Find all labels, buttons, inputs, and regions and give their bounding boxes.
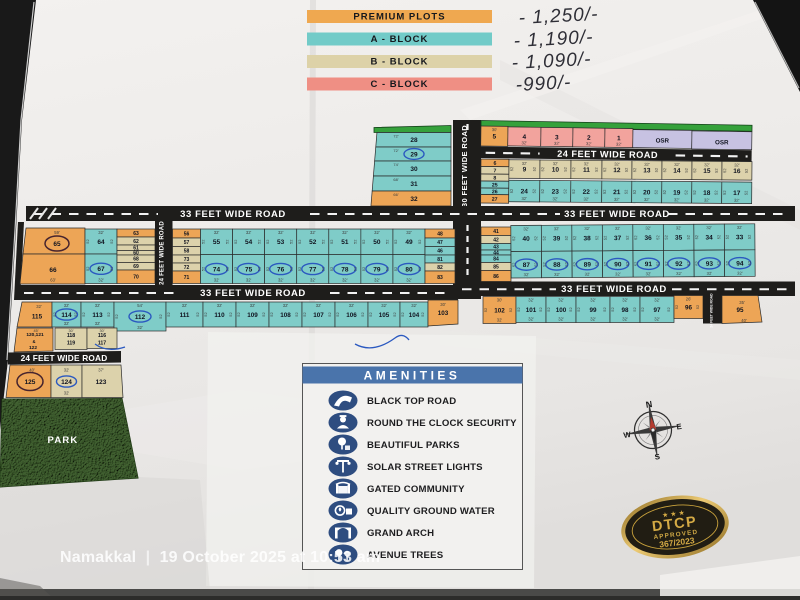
svg-text:52: 52: [546, 307, 551, 312]
svg-text:SOLAR STREET LIGHTS: SOLAR STREET LIGHTS: [367, 462, 483, 473]
svg-text:85: 85: [493, 264, 499, 270]
svg-text:24: 24: [521, 188, 529, 195]
svg-text:32': 32': [622, 298, 628, 303]
svg-text:52: 52: [368, 312, 373, 317]
svg-text:12: 12: [613, 167, 621, 174]
svg-text:30': 30': [69, 329, 74, 333]
svg-text:32': 32': [98, 230, 104, 235]
svg-text:52: 52: [106, 312, 111, 317]
svg-text:45': 45': [34, 329, 39, 333]
svg-text:37: 37: [614, 235, 622, 242]
svg-text:110: 110: [214, 312, 225, 319]
svg-text:C - BLOCK: C - BLOCK: [370, 79, 428, 90]
svg-text:&: &: [32, 339, 35, 344]
svg-text:52: 52: [261, 312, 266, 317]
svg-text:30': 30': [492, 127, 498, 132]
svg-text:26': 26': [686, 297, 692, 302]
svg-text:29: 29: [410, 151, 418, 158]
svg-text:32': 32': [64, 303, 70, 308]
svg-text:32': 32': [524, 272, 530, 277]
svg-text:63': 63': [50, 278, 56, 283]
svg-text:32': 32': [674, 197, 680, 202]
svg-text:100: 100: [556, 307, 567, 314]
svg-text:30 FEET WIDE ROAD: 30 FEET WIDE ROAD: [460, 125, 469, 207]
svg-text:66: 66: [49, 267, 57, 274]
svg-text:24 FEET WIDE ROAD: 24 FEET WIDE ROAD: [160, 221, 166, 285]
svg-text:52: 52: [195, 312, 200, 317]
svg-text:32': 32': [95, 321, 101, 326]
svg-text:125: 125: [25, 379, 36, 386]
svg-text:32': 32': [137, 325, 143, 330]
svg-text:52: 52: [400, 312, 405, 317]
svg-text:52: 52: [695, 304, 700, 309]
svg-text:21: 21: [613, 189, 621, 196]
svg-text:GRAND ARCH: GRAND ARCH: [367, 528, 434, 539]
svg-text:52: 52: [417, 239, 422, 244]
svg-text:52: 52: [158, 314, 163, 319]
svg-text:52: 52: [508, 307, 513, 312]
svg-text:34: 34: [706, 234, 714, 241]
svg-text:24 FEET WIDE ROAD: 24 FEET WIDE ROAD: [21, 353, 108, 363]
svg-text:89: 89: [584, 262, 592, 269]
svg-text:30': 30': [497, 298, 503, 303]
svg-text:28: 28: [410, 137, 418, 144]
svg-text:9: 9: [523, 166, 527, 173]
svg-text:40: 40: [523, 236, 531, 243]
svg-text:32': 32': [310, 230, 316, 235]
svg-text:72': 72': [393, 148, 398, 153]
svg-text:52: 52: [483, 307, 488, 312]
svg-text:52: 52: [289, 266, 294, 271]
svg-text:32': 32': [644, 197, 650, 202]
svg-text:BEAUTIFUL PARKS: BEAUTIFUL PARKS: [367, 440, 460, 451]
svg-text:52: 52: [335, 312, 340, 317]
svg-text:32': 32': [64, 321, 70, 326]
svg-text:18: 18: [703, 190, 711, 197]
svg-text:106: 106: [346, 312, 357, 319]
svg-text:36: 36: [645, 235, 653, 242]
svg-text:81: 81: [437, 257, 443, 263]
svg-text:52: 52: [203, 312, 208, 317]
svg-text:101: 101: [526, 307, 537, 314]
svg-text:80: 80: [405, 266, 413, 273]
svg-text:52: 52: [329, 266, 334, 271]
svg-text:32': 32': [704, 197, 710, 202]
svg-text:52: 52: [385, 239, 390, 244]
svg-text:52: 52: [302, 312, 307, 317]
svg-text:52: 52: [109, 239, 114, 244]
svg-text:52: 52: [538, 307, 543, 312]
svg-text:32': 32': [246, 230, 252, 235]
svg-text:GATED COMMUNITY: GATED COMMUNITY: [367, 484, 465, 495]
svg-text:32': 32': [737, 271, 743, 276]
svg-text:52: 52: [166, 312, 171, 317]
svg-text:52: 52: [568, 307, 573, 312]
svg-text:48: 48: [437, 231, 443, 237]
svg-text:OSR: OSR: [656, 137, 670, 144]
svg-text:16: 16: [733, 168, 741, 175]
svg-text:52: 52: [201, 239, 206, 244]
svg-text:87: 87: [523, 262, 531, 269]
svg-text:32': 32': [645, 226, 651, 231]
svg-text:32': 32': [734, 198, 740, 203]
svg-text:55: 55: [213, 239, 221, 246]
svg-text:52: 52: [329, 239, 334, 244]
svg-text:52: 52: [417, 266, 422, 271]
svg-text:35: 35: [675, 235, 683, 242]
svg-text:52: 52: [114, 314, 119, 319]
svg-text:51: 51: [341, 239, 349, 246]
svg-text:32': 32': [554, 226, 560, 231]
svg-text:52: 52: [297, 266, 302, 271]
svg-text:32': 32': [615, 226, 621, 231]
svg-text:6: 6: [494, 161, 497, 167]
svg-text:52: 52: [256, 266, 261, 271]
svg-text:ROUND THE CLOCK SECURITY: ROUND THE CLOCK SECURITY: [367, 418, 517, 429]
svg-text:20: 20: [643, 189, 651, 196]
svg-text:52: 52: [602, 307, 607, 312]
svg-text:42: 42: [493, 237, 499, 243]
svg-text:40': 40': [741, 318, 747, 323]
svg-text:33 FEET WIDE ROAD: 33 FEET WIDE ROAD: [564, 209, 670, 220]
svg-text:32': 32': [586, 141, 592, 146]
svg-text:19: 19: [673, 190, 681, 197]
svg-text:30': 30': [440, 302, 446, 307]
svg-text:32': 32': [554, 272, 560, 277]
svg-text:32': 32': [342, 278, 348, 283]
svg-text:117: 117: [98, 341, 106, 347]
svg-text:49: 49: [405, 239, 413, 246]
svg-text:105: 105: [379, 312, 390, 319]
svg-text:90: 90: [614, 261, 622, 268]
svg-text:119: 119: [67, 341, 75, 347]
svg-text:B - BLOCK: B - BLOCK: [370, 57, 428, 68]
svg-text:52: 52: [420, 312, 425, 317]
svg-text:- 1,190/-: - 1,190/-: [513, 27, 594, 52]
svg-text:95: 95: [736, 307, 744, 314]
svg-text:32': 32': [250, 303, 256, 308]
svg-text:32': 32': [349, 303, 355, 308]
svg-text:52: 52: [73, 312, 78, 317]
svg-text:52: 52: [361, 239, 366, 244]
svg-text:46: 46: [437, 249, 443, 255]
svg-text:32': 32': [654, 298, 660, 303]
svg-text:32': 32': [497, 318, 503, 323]
svg-text:57: 57: [184, 240, 190, 246]
svg-text:32': 32': [36, 304, 42, 309]
svg-text:118: 118: [67, 333, 75, 339]
svg-text:92: 92: [675, 261, 683, 268]
svg-text:52: 52: [321, 266, 326, 271]
svg-text:58: 58: [184, 249, 190, 255]
svg-text:32': 32': [406, 230, 412, 235]
svg-text:52: 52: [321, 239, 326, 244]
svg-text:32': 32': [64, 368, 70, 373]
svg-text:17: 17: [733, 190, 741, 197]
svg-text:32': 32': [614, 197, 620, 202]
svg-text:32': 32': [553, 161, 559, 166]
svg-text:14: 14: [673, 168, 681, 175]
svg-text:32': 32': [278, 230, 284, 235]
svg-text:52: 52: [393, 239, 398, 244]
svg-text:32': 32': [707, 271, 713, 276]
svg-text:37': 37': [98, 368, 104, 373]
svg-text:108: 108: [280, 312, 291, 319]
svg-text:98: 98: [621, 307, 629, 314]
svg-text:52: 52: [610, 307, 615, 312]
svg-text:33 FEET WIDE ROAD: 33 FEET WIDE ROAD: [561, 284, 667, 295]
svg-text:32': 32': [342, 230, 348, 235]
svg-text:53: 53: [277, 239, 285, 246]
svg-text:67: 67: [97, 266, 105, 273]
svg-text:11: 11: [583, 167, 590, 174]
svg-text:32': 32': [283, 303, 289, 308]
svg-text:32': 32': [622, 317, 628, 322]
svg-text:122: 122: [29, 345, 37, 351]
svg-text:52: 52: [236, 312, 241, 317]
svg-text:32': 32': [737, 225, 743, 230]
svg-text:32': 32': [95, 303, 101, 308]
svg-text:52: 52: [109, 266, 114, 271]
svg-text:52: 52: [52, 312, 57, 317]
svg-text:114: 114: [61, 312, 72, 319]
svg-text:68': 68': [393, 177, 398, 182]
svg-text:32': 32': [406, 278, 412, 283]
svg-text:32': 32': [98, 278, 104, 283]
svg-text:59': 59': [54, 230, 60, 235]
svg-text:94: 94: [736, 260, 744, 267]
svg-text:123: 123: [96, 379, 107, 386]
svg-text:PREMIUM PLOTS: PREMIUM PLOTS: [353, 12, 445, 23]
svg-text:102: 102: [494, 307, 505, 314]
svg-text:82: 82: [437, 265, 443, 271]
svg-text:52: 52: [576, 307, 581, 312]
svg-text:- 1,090/-: - 1,090/-: [511, 49, 592, 74]
svg-text:OSR: OSR: [715, 139, 729, 146]
svg-text:54: 54: [245, 239, 253, 246]
svg-text:78: 78: [341, 266, 349, 273]
svg-text:32': 32': [374, 230, 380, 235]
svg-text:32': 32': [310, 278, 316, 283]
svg-text:86: 86: [493, 274, 499, 280]
svg-text:32': 32': [528, 317, 534, 322]
svg-text:111: 111: [180, 312, 190, 319]
svg-text:52: 52: [201, 266, 206, 271]
svg-text:52: 52: [224, 266, 229, 271]
svg-text:24 FEET WIDE ROAD: 24 FEET WIDE ROAD: [710, 293, 714, 328]
svg-text:32': 32': [614, 162, 620, 167]
svg-text:Namakkal | 19 October 2025 a: Namakkal | 19 October 2025 at 10:53 am: [60, 549, 380, 566]
svg-text:32': 32': [64, 391, 70, 396]
svg-text:84: 84: [493, 257, 499, 263]
svg-text:32': 32': [214, 278, 220, 283]
svg-text:32': 32': [590, 317, 596, 322]
svg-text:- 1,250/-: - 1,250/-: [518, 4, 599, 29]
svg-text:69: 69: [133, 264, 139, 270]
svg-text:52: 52: [85, 239, 90, 244]
svg-text:79: 79: [373, 266, 381, 273]
svg-text:88: 88: [553, 262, 561, 269]
svg-text:32': 32': [522, 140, 528, 145]
svg-text:66': 66': [393, 192, 398, 197]
svg-text:83: 83: [437, 275, 443, 281]
svg-text:52: 52: [228, 312, 233, 317]
svg-text:52: 52: [385, 266, 390, 271]
svg-text:52: 52: [309, 239, 317, 246]
svg-text:52: 52: [289, 239, 294, 244]
svg-text:68: 68: [133, 257, 139, 263]
svg-text:52: 52: [269, 312, 274, 317]
svg-text:32': 32': [654, 317, 660, 322]
svg-text:115: 115: [32, 314, 43, 321]
svg-text:107: 107: [313, 312, 324, 319]
svg-text:32': 32': [522, 161, 528, 166]
svg-text:32': 32': [676, 225, 682, 230]
svg-text:35': 35': [739, 300, 745, 305]
svg-text:99: 99: [589, 307, 597, 314]
svg-text:112: 112: [135, 314, 146, 321]
svg-text:32': 32': [411, 303, 417, 308]
svg-text:32': 32': [644, 162, 650, 167]
svg-text:41: 41: [493, 229, 499, 235]
svg-text:96: 96: [685, 304, 693, 311]
svg-text:32: 32: [410, 196, 418, 203]
svg-text:22: 22: [583, 189, 591, 196]
svg-text:7: 7: [493, 168, 496, 174]
svg-text:BLACK TOP ROAD: BLACK TOP ROAD: [367, 396, 456, 407]
svg-text:52: 52: [353, 239, 358, 244]
svg-text:32': 32': [646, 271, 652, 276]
svg-text:52: 52: [353, 266, 358, 271]
svg-text:32': 32': [590, 298, 596, 303]
svg-text:5: 5: [492, 134, 496, 141]
svg-text:64: 64: [97, 239, 105, 246]
svg-text:8: 8: [493, 175, 496, 181]
svg-text:52: 52: [327, 312, 332, 317]
svg-text:56: 56: [184, 231, 190, 237]
svg-text:32': 32': [552, 196, 558, 201]
svg-text:38: 38: [584, 235, 592, 242]
svg-text:15: 15: [703, 168, 711, 175]
svg-text:32': 32': [584, 226, 590, 231]
svg-text:52: 52: [85, 266, 90, 271]
svg-text:32': 32': [523, 226, 529, 231]
svg-text:97: 97: [653, 307, 661, 314]
svg-text:A - BLOCK: A - BLOCK: [371, 34, 429, 45]
svg-text:52: 52: [392, 312, 397, 317]
svg-text:32': 32': [585, 272, 591, 277]
svg-text:77: 77: [309, 266, 317, 273]
svg-text:52: 52: [640, 307, 645, 312]
svg-text:109: 109: [247, 312, 258, 319]
svg-text:52: 52: [361, 266, 366, 271]
svg-text:32': 32': [246, 278, 252, 283]
svg-text:62: 62: [133, 239, 139, 245]
svg-text:32': 32': [316, 303, 322, 308]
svg-text:52: 52: [256, 239, 261, 244]
svg-text:52: 52: [294, 312, 299, 317]
svg-text:76: 76: [277, 266, 285, 273]
svg-text:32': 32': [558, 298, 564, 303]
svg-text:PARK: PARK: [47, 435, 78, 446]
svg-text:32': 32': [521, 196, 527, 201]
svg-text:23: 23: [552, 189, 560, 196]
svg-text:40': 40': [29, 368, 35, 373]
svg-text:27: 27: [492, 197, 498, 203]
svg-text:75: 75: [245, 266, 253, 273]
svg-text:52: 52: [666, 307, 671, 312]
svg-text:70: 70: [133, 275, 139, 281]
svg-text:91: 91: [645, 261, 653, 268]
svg-text:71: 71: [184, 275, 190, 281]
svg-text:72: 72: [184, 265, 190, 271]
svg-text:32': 32': [584, 161, 590, 166]
svg-text:52: 52: [674, 304, 679, 309]
svg-text:65: 65: [53, 241, 61, 248]
svg-text:32': 32': [374, 278, 380, 283]
svg-text:39: 39: [553, 235, 561, 242]
svg-text:30': 30': [100, 329, 105, 333]
svg-text:52: 52: [224, 239, 229, 244]
svg-text:72': 72': [393, 134, 398, 139]
svg-text:52: 52: [265, 239, 270, 244]
svg-text:52: 52: [265, 266, 270, 271]
svg-text:52: 52: [632, 307, 637, 312]
svg-text:47: 47: [437, 240, 443, 246]
svg-text:52: 52: [516, 307, 521, 312]
svg-text:52: 52: [360, 312, 365, 317]
svg-text:32': 32': [615, 271, 621, 276]
svg-text:32': 32': [528, 298, 534, 303]
svg-text:32': 32': [278, 278, 284, 283]
svg-text:32': 32': [706, 225, 712, 230]
svg-text:52: 52: [81, 312, 86, 317]
svg-text:74: 74: [213, 266, 221, 273]
svg-text:74': 74': [393, 162, 398, 167]
svg-text:32': 32': [734, 162, 740, 167]
svg-text:32': 32': [676, 271, 682, 276]
svg-text:QUALITY GROUND WATER: QUALITY GROUND WATER: [367, 506, 495, 517]
svg-text:32': 32': [217, 303, 223, 308]
svg-text:63: 63: [133, 231, 139, 237]
svg-text:AMENITIES: AMENITIES: [364, 368, 461, 382]
svg-text:104: 104: [409, 312, 420, 319]
svg-text:32': 32': [583, 197, 589, 202]
svg-text:30: 30: [410, 166, 418, 173]
svg-text:32': 32': [182, 303, 188, 308]
svg-text:31: 31: [410, 181, 418, 188]
svg-text:32': 32': [674, 162, 680, 167]
svg-text:93: 93: [706, 261, 714, 268]
svg-text:113: 113: [92, 312, 103, 319]
svg-text:50: 50: [373, 239, 381, 246]
svg-text:10: 10: [552, 167, 560, 174]
svg-text:32': 32': [616, 142, 622, 147]
svg-text:32': 32': [214, 230, 220, 235]
svg-text:52: 52: [297, 239, 302, 244]
svg-text:124: 124: [61, 379, 72, 386]
svg-text:52: 52: [233, 266, 238, 271]
svg-text:24 FEET WIDE ROAD: 24 FEET WIDE ROAD: [557, 149, 658, 160]
svg-text:32': 32': [558, 317, 564, 322]
svg-text:13: 13: [643, 167, 651, 174]
svg-text:32': 32': [554, 141, 560, 146]
svg-text:32': 32': [704, 162, 710, 167]
svg-text:-990/-: -990/-: [515, 72, 572, 96]
svg-text:54': 54': [137, 303, 143, 308]
svg-text:25: 25: [492, 182, 498, 188]
svg-text:33 FEET WIDE ROAD: 33 FEET WIDE ROAD: [180, 209, 286, 220]
